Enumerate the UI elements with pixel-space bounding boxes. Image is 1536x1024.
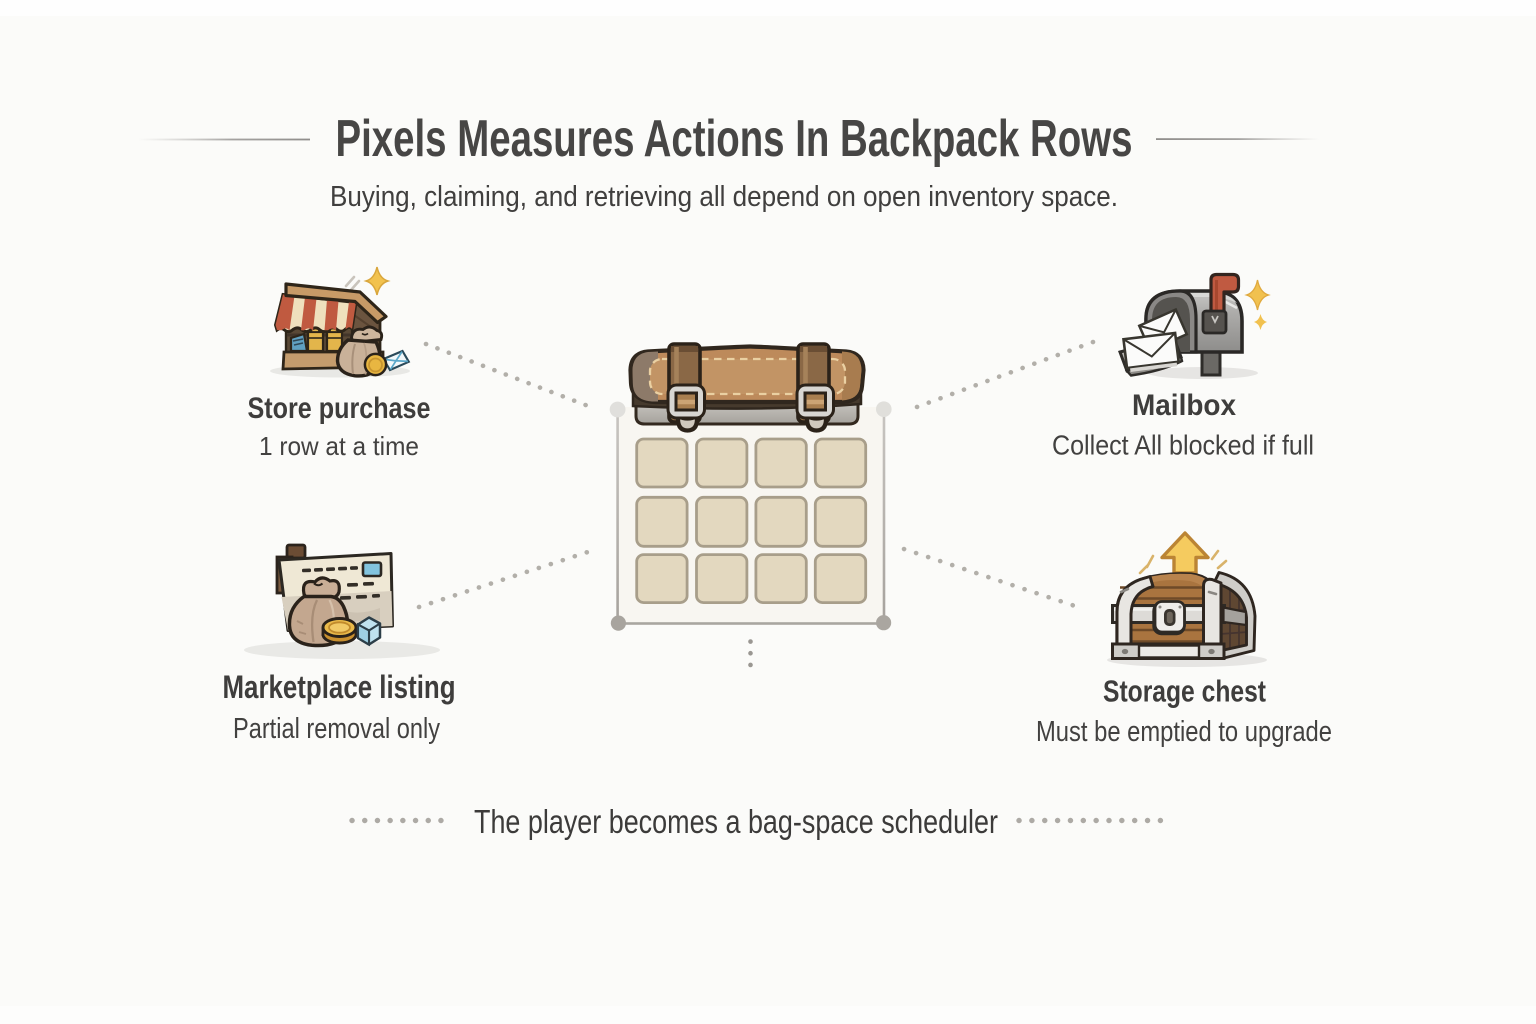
svg-text:Mailbox: Mailbox [1132,389,1236,422]
svg-text:1 row at a time: 1 row at a time [259,431,419,461]
svg-text:Store purchase: Store purchase [248,392,431,425]
svg-text:The player becomes a bag-space: The player becomes a bag-space scheduler [474,803,998,840]
svg-text:Must be emptied to upgrade: Must be emptied to upgrade [1036,716,1332,748]
svg-text:Marketplace listing: Marketplace listing [223,669,456,705]
svg-text:Pixels Measures Actions In Bac: Pixels Measures Actions In Backpack Rows [336,110,1133,168]
svg-text:Collect All blocked if full: Collect All blocked if full [1052,430,1314,461]
svg-text:Storage chest: Storage chest [1103,674,1266,709]
svg-text:Buying, claiming, and retrievi: Buying, claiming, and retrieving all dep… [330,181,1118,213]
svg-text:Partial removal only: Partial removal only [233,713,440,745]
